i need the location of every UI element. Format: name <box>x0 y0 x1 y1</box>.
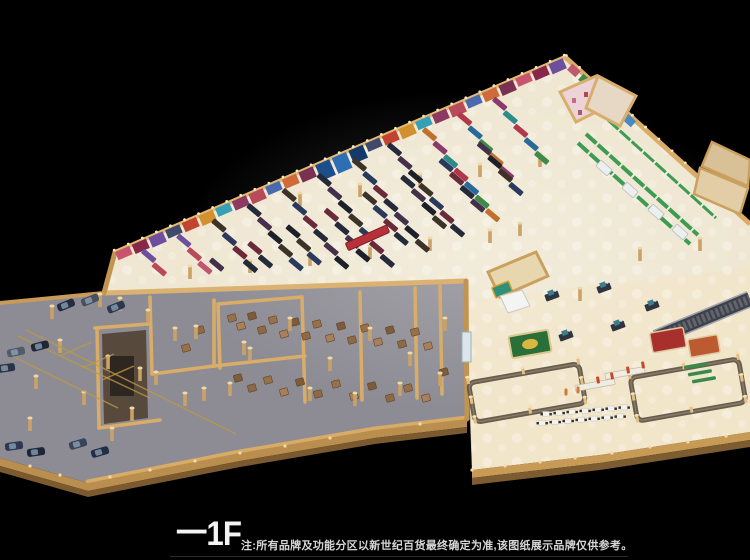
dining-chair <box>615 415 617 417</box>
interior-wall <box>150 297 152 374</box>
wall-cap <box>671 150 674 153</box>
dining-table <box>608 406 615 411</box>
support-column <box>368 328 372 341</box>
wall-cap <box>127 243 130 246</box>
dining-table <box>621 405 628 410</box>
dining-chair <box>628 406 630 408</box>
wall-cap <box>338 151 341 154</box>
support-column <box>188 266 192 279</box>
column-cap <box>109 427 114 430</box>
column-cap <box>117 297 122 300</box>
support-column <box>242 342 246 355</box>
dining-chair <box>546 422 548 424</box>
wall-cap <box>239 194 242 197</box>
wall-cap <box>380 133 383 136</box>
column-cap <box>97 293 102 296</box>
dining-table <box>539 421 546 426</box>
dining-table <box>543 412 550 417</box>
support-column <box>110 428 114 441</box>
dining-chair <box>554 412 556 414</box>
support-column <box>173 328 177 341</box>
wall-cap <box>686 440 689 443</box>
interior-wall <box>218 304 220 368</box>
column-cap <box>307 387 312 390</box>
column-cap <box>172 327 177 330</box>
staff-figure <box>565 389 568 396</box>
wall-cap <box>296 170 299 173</box>
support-column <box>248 348 252 361</box>
column-cap <box>153 371 158 374</box>
dining-chair <box>589 410 591 412</box>
wall-cap <box>422 115 425 118</box>
support-column <box>34 376 38 389</box>
wall-cap <box>324 157 327 160</box>
wall-cap <box>464 96 467 99</box>
column-cap <box>487 229 492 232</box>
column-cap <box>182 392 187 395</box>
dining-table <box>604 415 611 420</box>
wall-cap <box>328 436 331 439</box>
wall-cap <box>183 218 186 221</box>
wall-cap <box>58 473 61 476</box>
column-cap <box>187 265 192 268</box>
column-cap <box>517 222 522 225</box>
support-column <box>146 310 150 323</box>
column-cap <box>442 317 447 320</box>
column-cap <box>477 163 482 166</box>
dining-chair <box>619 406 621 408</box>
wall-cap <box>28 464 31 467</box>
column-cap <box>129 407 134 410</box>
dining-chair <box>537 422 539 424</box>
support-column <box>398 383 402 396</box>
dining-chair <box>580 410 582 412</box>
wall-cap <box>283 444 286 447</box>
wall-cap <box>549 60 552 63</box>
support-column <box>578 288 582 301</box>
support-column <box>308 388 312 401</box>
dining-table <box>578 417 585 422</box>
support-column <box>353 393 357 406</box>
column-cap <box>57 339 62 342</box>
support-column <box>98 294 102 307</box>
wall-cap <box>238 451 241 454</box>
dining-chair <box>602 409 604 411</box>
interior-wall <box>415 288 417 398</box>
column-cap <box>357 183 362 186</box>
wall-cap <box>631 114 634 117</box>
column-cap <box>193 325 198 328</box>
wall-cap <box>565 54 568 57</box>
support-column <box>408 353 412 366</box>
dining-chair <box>598 418 600 420</box>
dining-chair <box>585 419 587 421</box>
support-column <box>202 388 206 401</box>
wall-cap <box>644 126 647 129</box>
column-cap <box>227 382 232 385</box>
dining-chair <box>550 421 552 423</box>
wall-cap <box>610 451 613 454</box>
support-column <box>228 383 232 396</box>
dining-chair <box>576 419 578 421</box>
wall-cap <box>507 78 510 81</box>
dining-chair <box>615 408 617 410</box>
dining-chair <box>563 412 565 414</box>
screenshot-root: 一1F 注:所有品牌及功能分区以新世纪百货最终确定为准,该图纸展示品牌仅供参考。 <box>0 0 750 560</box>
support-column <box>328 358 332 371</box>
car-windshield <box>9 443 17 450</box>
dining-chair <box>624 415 626 417</box>
dining-chair <box>567 411 569 413</box>
wall-cap <box>578 66 581 69</box>
dining-chair <box>611 417 613 419</box>
dining-table <box>617 414 624 419</box>
dining-chair <box>576 411 578 413</box>
dining-table <box>552 419 559 424</box>
interior-wall <box>360 292 362 400</box>
support-column <box>154 372 158 385</box>
dining-table <box>582 408 589 413</box>
car-windshield <box>31 449 39 456</box>
support-column <box>358 184 362 197</box>
poster <box>578 110 582 115</box>
column-cap <box>697 237 702 240</box>
column-cap <box>247 347 252 350</box>
wall-cap <box>197 212 200 215</box>
support-column <box>443 318 447 331</box>
car-windshield <box>1 365 9 372</box>
wall-cap <box>470 468 473 471</box>
support-column <box>50 306 54 319</box>
wall-cap <box>282 176 285 179</box>
support-column <box>478 164 482 177</box>
wall-cap <box>113 249 116 252</box>
wall-cap <box>573 456 576 459</box>
column-cap <box>49 305 54 308</box>
wall-cap <box>193 459 196 462</box>
column-cap <box>407 352 412 355</box>
wall-cap <box>155 230 158 233</box>
support-column <box>638 248 642 261</box>
support-column <box>28 418 32 431</box>
floorplan-render <box>0 0 750 560</box>
column-cap <box>352 392 357 395</box>
dining-table <box>569 409 576 414</box>
dining-chair <box>563 420 565 422</box>
wall-cap <box>394 127 397 130</box>
column-cap <box>427 237 432 240</box>
wall-cap <box>503 464 506 467</box>
column-cap <box>367 327 372 330</box>
wall-cap <box>724 434 727 437</box>
support-column <box>298 193 302 206</box>
signage-pillar <box>462 332 471 362</box>
dining-chair <box>602 417 604 419</box>
wall-cap <box>310 163 313 166</box>
column-cap <box>577 287 582 290</box>
dining-chair <box>606 408 608 410</box>
wall-cap <box>492 84 495 87</box>
poster <box>584 92 588 97</box>
support-column <box>82 392 86 405</box>
wall-cap <box>225 200 228 203</box>
column-cap <box>27 417 32 420</box>
column-cap <box>287 317 292 320</box>
support-column <box>194 326 198 339</box>
wall-cap <box>352 145 355 148</box>
staff-figure <box>577 387 580 394</box>
support-column <box>698 238 702 251</box>
interior-wall <box>97 328 99 428</box>
wall-cap <box>408 121 411 124</box>
support-column <box>488 230 492 243</box>
dining-table <box>591 416 598 421</box>
dining-chair <box>572 420 574 422</box>
column-cap <box>637 247 642 250</box>
wall-cap <box>436 109 439 112</box>
wall-cap <box>521 72 524 75</box>
column-cap <box>241 341 246 344</box>
wall-cap <box>538 460 541 463</box>
wall-cap <box>684 161 687 164</box>
wall-cap <box>267 182 270 185</box>
column-cap <box>201 387 206 390</box>
column-cap <box>33 375 38 378</box>
poster <box>572 98 576 103</box>
column-cap <box>137 367 142 370</box>
dining-chair <box>589 418 591 420</box>
column-cap <box>145 309 150 312</box>
wall-cap <box>253 188 256 191</box>
wall-cap <box>478 90 481 93</box>
dining-chair <box>550 413 552 415</box>
column-cap <box>327 357 332 360</box>
wall-cap <box>141 237 144 240</box>
wall-cap <box>535 66 538 69</box>
support-column <box>288 318 292 331</box>
support-column <box>130 408 134 421</box>
support-column <box>138 368 142 381</box>
wall-cap <box>657 138 660 141</box>
dining-chair <box>593 409 595 411</box>
wall-cap <box>418 422 421 425</box>
dining-chair <box>559 421 561 423</box>
dining-table <box>556 410 563 415</box>
wall-cap <box>148 468 151 471</box>
dining-table <box>595 407 602 412</box>
column-cap <box>417 173 422 176</box>
wall-cap <box>211 206 214 209</box>
dining-chair <box>541 413 543 415</box>
column-cap <box>297 192 302 195</box>
wall-cap <box>169 224 172 227</box>
wall-cap <box>648 445 651 448</box>
wall-cap <box>450 103 453 106</box>
support-column <box>438 373 442 386</box>
wall-cap <box>366 139 369 142</box>
support-column <box>183 393 187 406</box>
support-column <box>518 223 522 236</box>
column-cap <box>397 382 402 385</box>
wall-cap <box>108 475 111 478</box>
storeroom-door <box>110 356 134 396</box>
dining-table <box>565 418 572 423</box>
column-cap <box>437 372 442 375</box>
